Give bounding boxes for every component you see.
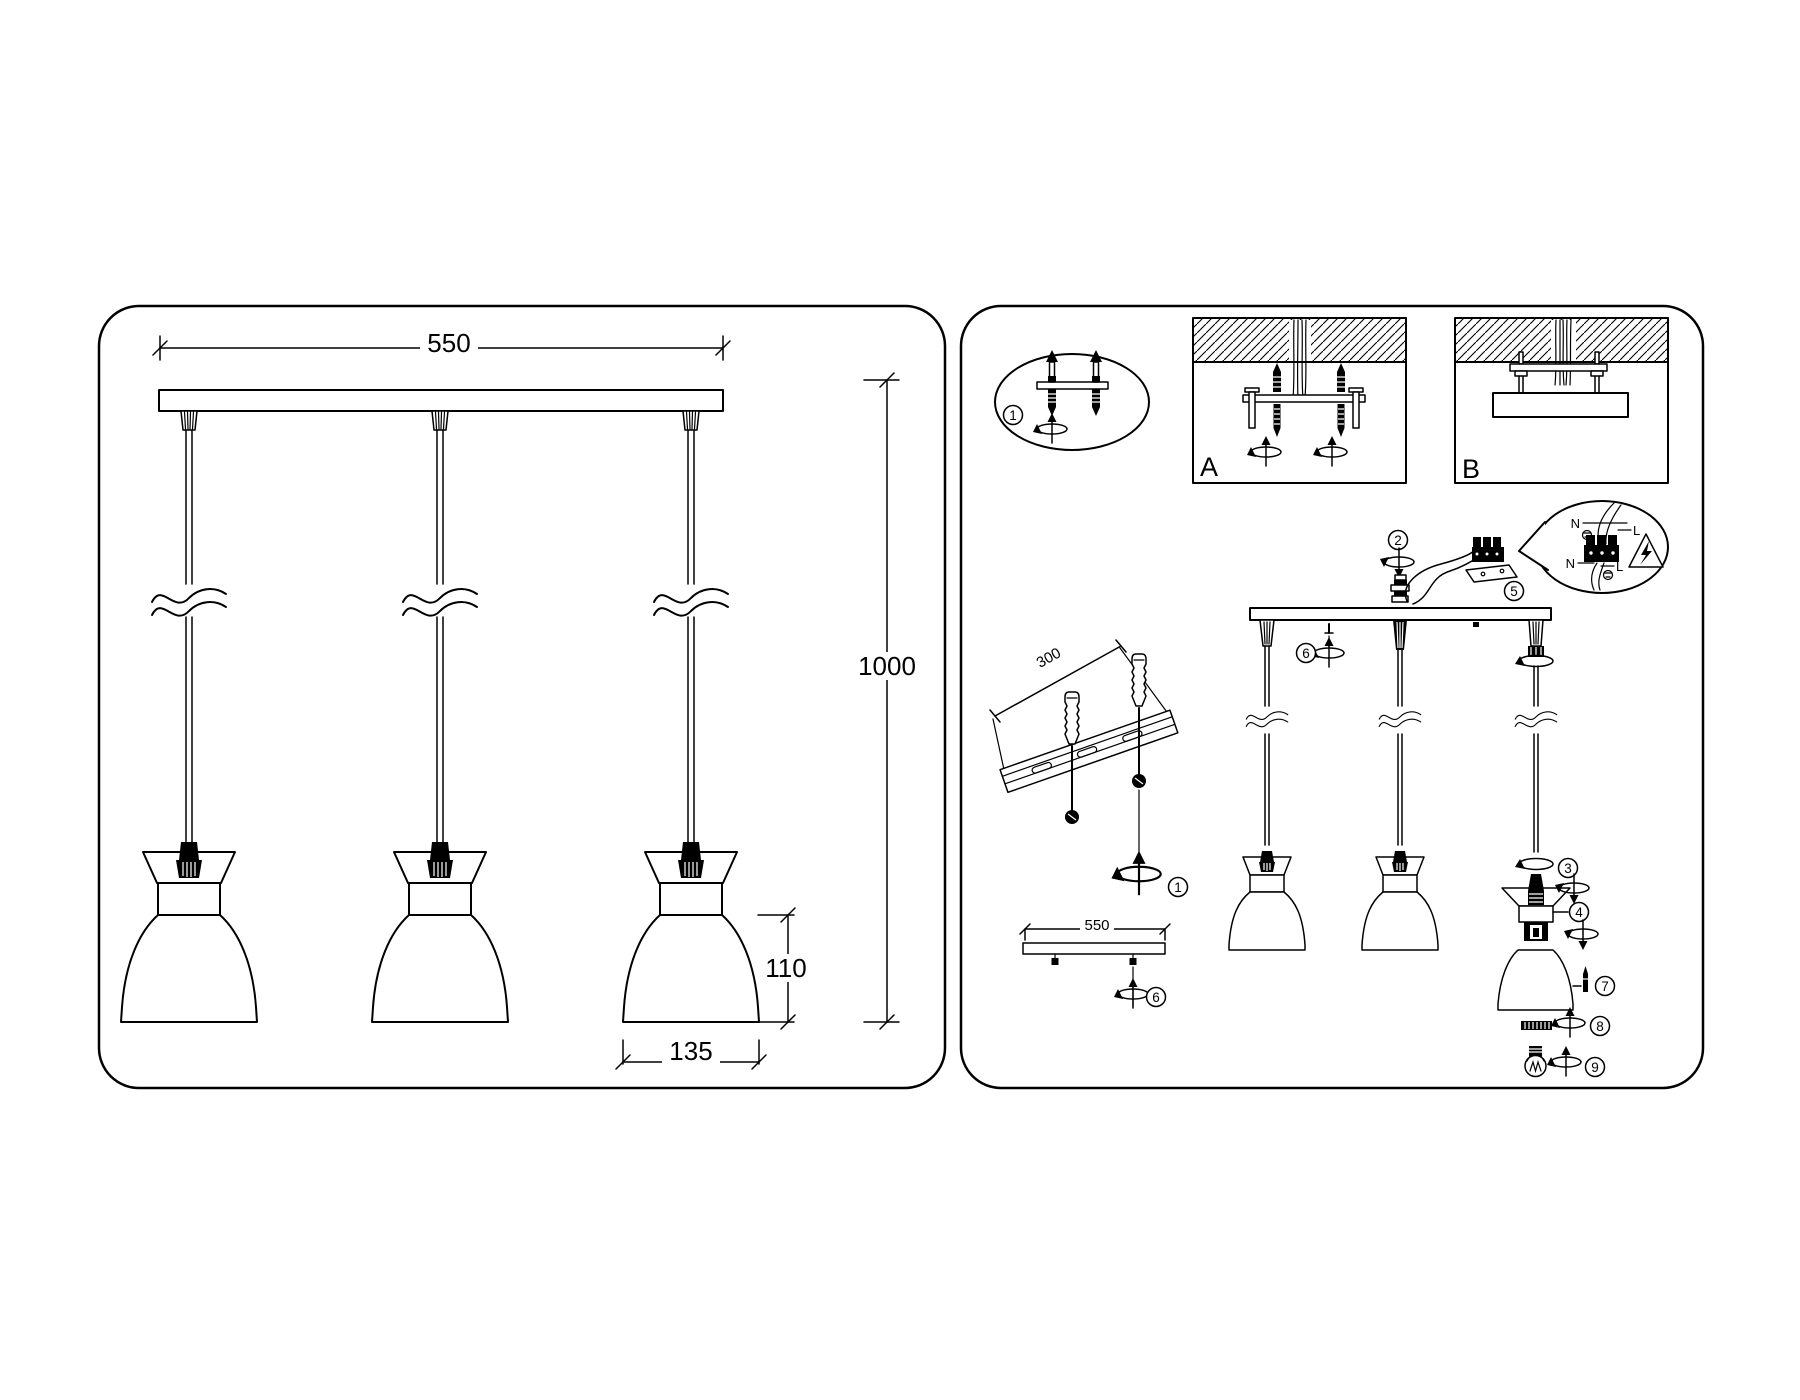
wire-n-bottom-label: N [1566,556,1575,571]
callout-6b: 6 [1152,990,1160,1005]
terminal-block [1472,537,1504,562]
callout-5: 5 [1510,584,1518,599]
callout-1b: 1 [1174,880,1182,895]
callout-7: 7 [1601,979,1609,994]
option-a-label: A [1200,452,1218,482]
screw-head [1591,371,1603,376]
callout-3: 3 [1564,861,1572,876]
mounting-bracket [1510,364,1607,371]
dim-550-canopy-label: 550 [1084,917,1109,934]
left-panel-dimension-drawing: 550 110 [99,306,945,1088]
right-panel-installation-steps: 1 A [961,306,1703,1088]
callout-6: 6 [1302,646,1310,661]
dim-1000-label: 1000 [858,651,916,681]
wire-l-bottom-label: L [1616,559,1623,574]
mounting-option-b: B [1455,318,1668,484]
callout-8: 8 [1596,1019,1604,1034]
shade-ring-band [1519,906,1553,922]
dim-135-label: 135 [669,1036,712,1066]
canopy-bar [1250,608,1551,620]
callout-4: 4 [1575,905,1583,920]
mounting-bracket [1243,395,1365,402]
screw-head [1515,371,1527,376]
canopy-mounted [1493,393,1628,417]
callout-9: 9 [1591,1060,1599,1075]
callout-1: 1 [1009,408,1017,423]
callout-2: 2 [1394,533,1402,548]
wall-plug [1132,654,1146,706]
dim-550-label: 550 [427,328,470,358]
ceiling-bar [159,390,723,411]
dim-110-label: 110 [765,953,806,983]
canopy-screw [1473,622,1479,627]
option-b-label: B [1462,454,1480,484]
wire-l-top-label: L [1633,523,1640,538]
canopy-bar-detail [1023,943,1165,954]
wire-n-top-label: N [1571,516,1580,531]
wall-plug [1065,692,1079,744]
instruction-sheet: 550 110 [0,0,1800,1400]
threaded-nipple [1528,874,1544,905]
lamp-socket [1524,922,1548,941]
mounting-option-a: A [1193,318,1406,483]
diagram-canvas: 550 110 [0,0,1800,1400]
